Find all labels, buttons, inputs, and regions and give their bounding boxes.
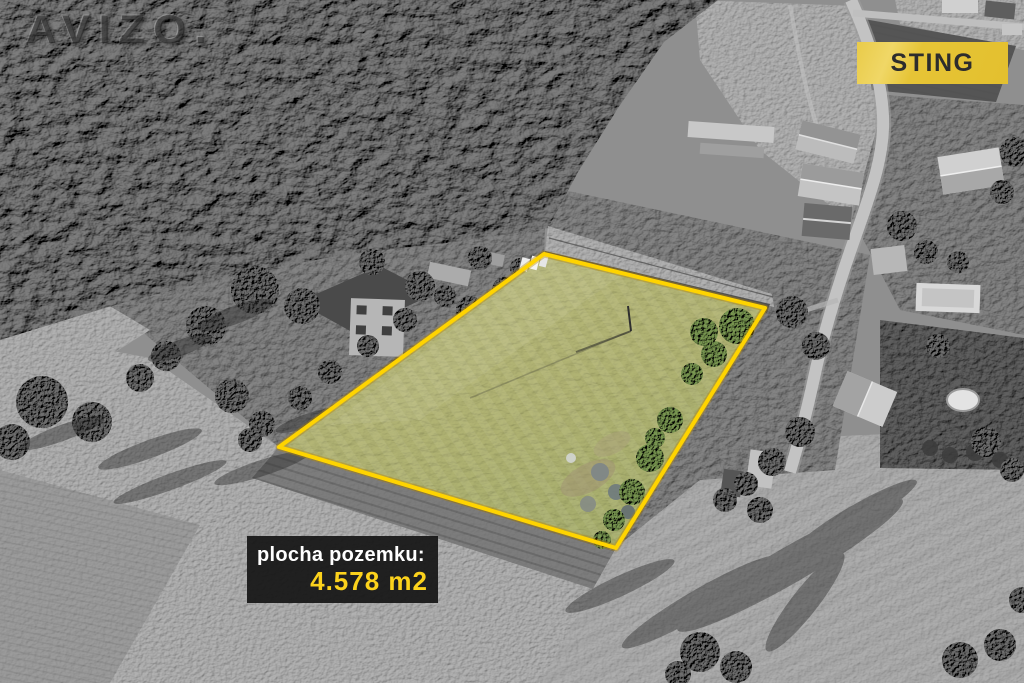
agency-badge-label: STING [891, 49, 975, 78]
agency-badge-sting: STING [857, 42, 1008, 84]
aerial-photo-scene [0, 0, 1024, 683]
area-label: plocha pozemku: 4.578 m2 [247, 536, 438, 603]
garden-pool [947, 389, 979, 411]
area-label-title: plocha pozemku: [257, 544, 428, 567]
area-label-value: 4.578 m2 [257, 567, 428, 597]
watermark-avizo: AVIZO. [26, 10, 215, 50]
aerial-photo-listing: AVIZO. STING plocha pozemku: 4.578 m2 [0, 0, 1024, 683]
